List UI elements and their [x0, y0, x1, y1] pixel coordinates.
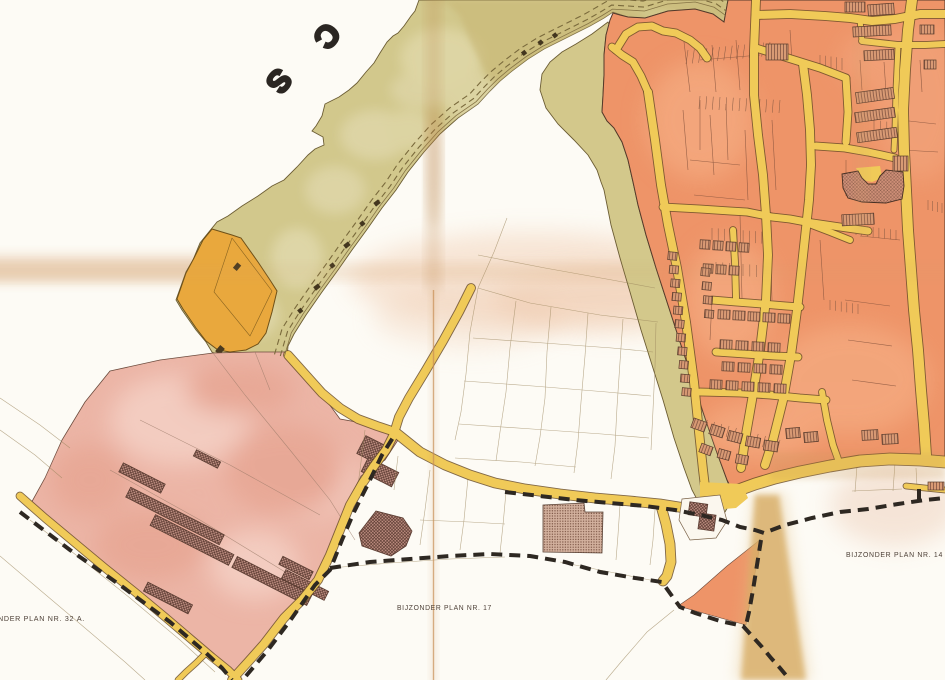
svg-text:NDER PLAN NR. 32 A.: NDER PLAN NR. 32 A.: [0, 616, 85, 623]
svg-text:BIJZONDER PLAN NR. 17: BIJZONDER PLAN NR. 17: [397, 605, 492, 612]
svg-text:BIJZONDER PLAN NR. 14: BIJZONDER PLAN NR. 14: [846, 552, 943, 559]
